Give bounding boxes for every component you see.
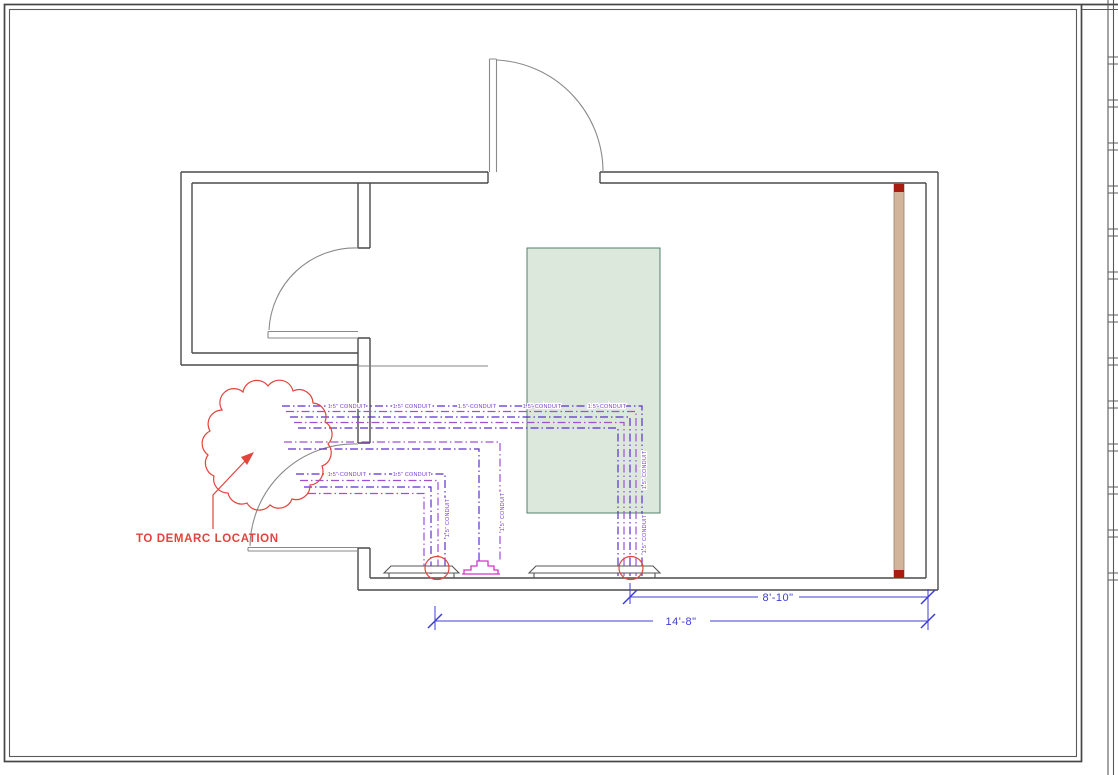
right-sill-supports <box>534 573 655 578</box>
floor-plan-drawing: 1.5" CONDUIT 1.5" CONDUIT 1.5" CONDUIT 1… <box>0 0 1118 775</box>
vestibule-door-swing-arc <box>269 248 358 330</box>
conduit-run <box>308 494 424 575</box>
cad-sheet: 1.5" CONDUIT 1.5" CONDUIT 1.5" CONDUIT 1… <box>0 0 1118 775</box>
demarc-callout: TO DEMARC LOCATION <box>136 380 332 545</box>
conduit-run <box>300 481 438 575</box>
conduit-label-vertical: 1.5" CONDUIT <box>500 492 506 531</box>
top-door-leaf <box>490 59 497 172</box>
dimension-outer: 14'-8" <box>428 604 935 630</box>
adjacent-sheet-edge-lines <box>1108 0 1114 775</box>
adjacent-sheet-edge <box>1108 0 1118 775</box>
floor-monument <box>462 561 500 574</box>
dimension-inner: 8'-10" <box>623 583 935 604</box>
lower-door-leaf <box>248 548 358 552</box>
conduit-label: 1.5" CONDUIT <box>393 404 432 410</box>
conduit-label: 1.5" CONDUIT <box>328 472 367 478</box>
demarc-leader-line <box>213 459 247 529</box>
conduit-label: 1.5" CONDUIT <box>523 404 562 410</box>
top-door-swing-arc <box>497 60 603 172</box>
conduit-label: 1.5" CONDUIT <box>588 404 627 410</box>
vestibule-door-leaf <box>268 332 358 339</box>
dimension-outer-value: 14'-8" <box>665 616 696 628</box>
equipment-zone <box>527 248 660 513</box>
dimension-inner-value: 8'-10" <box>762 592 793 604</box>
lower-door-swing-arc <box>250 444 358 546</box>
backboard-cap-top <box>894 184 904 192</box>
conduit-run <box>304 487 431 574</box>
conduit-label: 1.5" CONDUIT <box>393 472 432 478</box>
conduit-label: 1.5" CONDUIT <box>328 404 367 410</box>
conduit-label-vertical: 1.5" CONDUIT <box>642 450 648 489</box>
conduit-label-vertical: 1.5" CONDUIT <box>642 514 648 553</box>
demarc-label: TO DEMARC LOCATION <box>136 533 279 545</box>
backboard-body <box>894 184 904 578</box>
backboard-strip <box>894 184 904 578</box>
backboard-cap-bottom <box>894 570 904 578</box>
right-sill <box>529 566 660 573</box>
conduit-label: 1.5" CONDUIT <box>458 404 497 410</box>
conduit-run <box>284 442 500 562</box>
conduit-label-vertical: 1.5" CONDUIT <box>445 498 451 537</box>
